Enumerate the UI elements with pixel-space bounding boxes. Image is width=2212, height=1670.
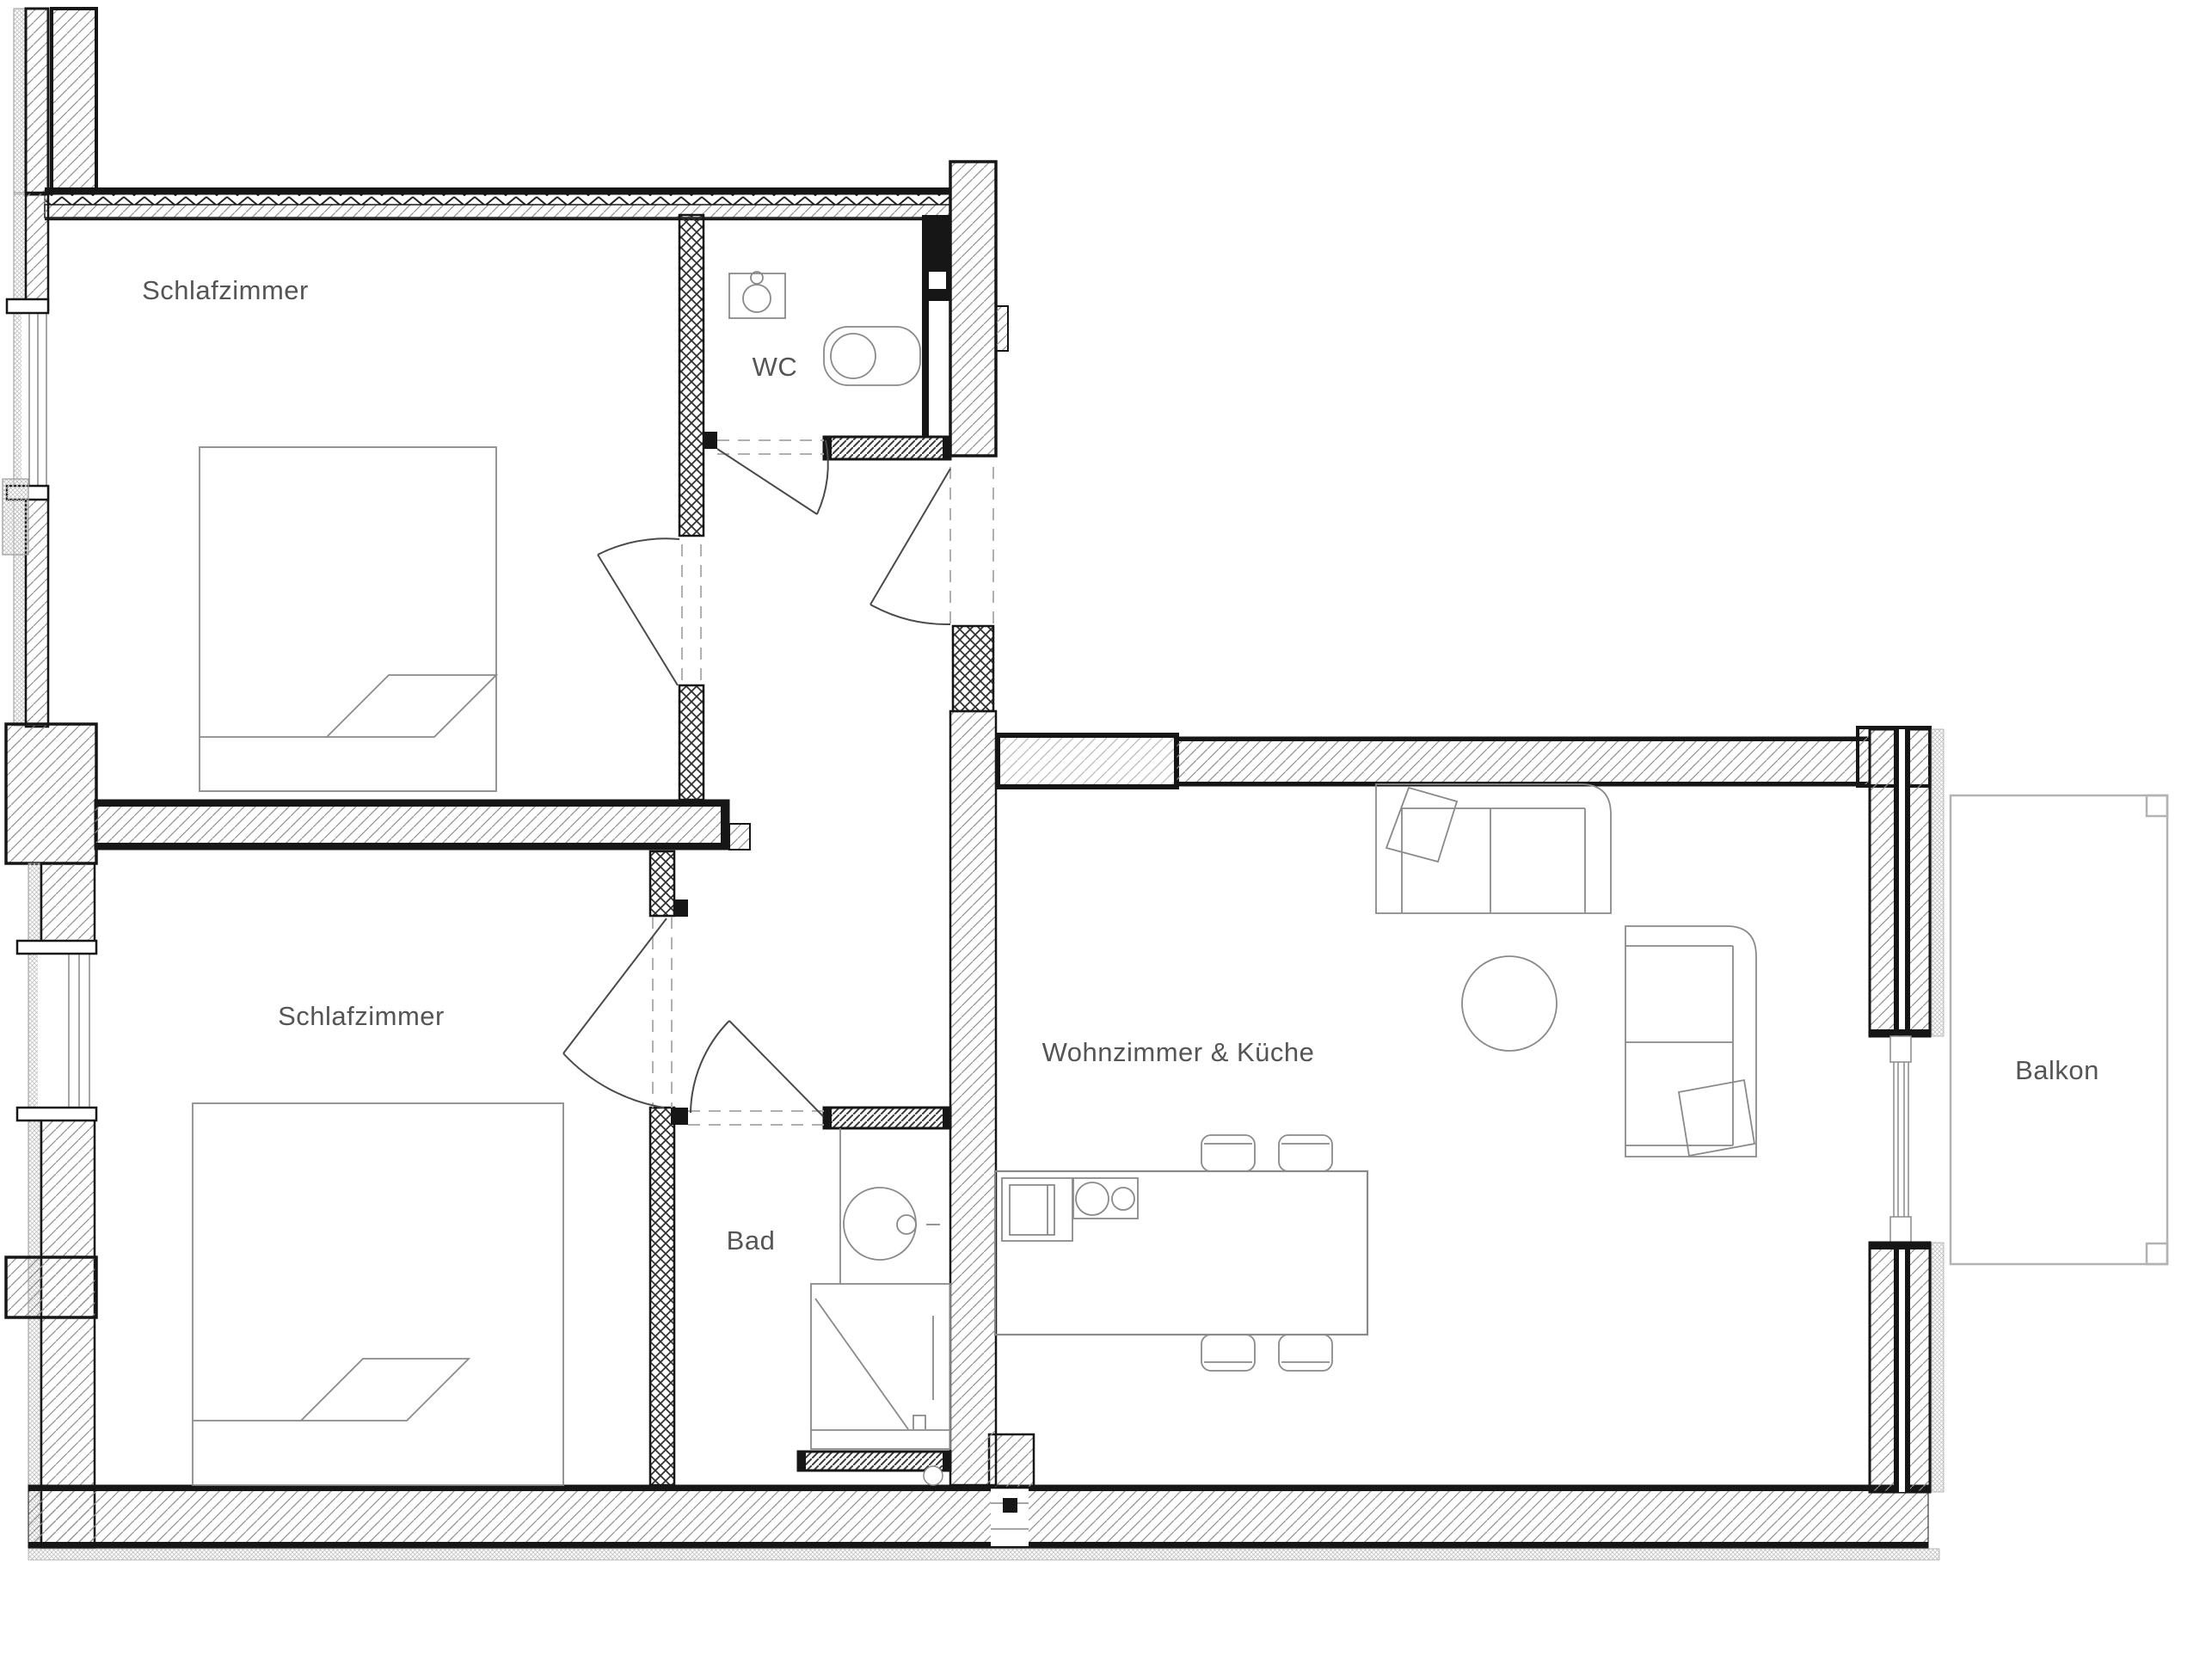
balcony-post-top [2147,795,2167,816]
party-wall-stub [14,9,96,194]
label-wc: WC [753,352,798,382]
door-bath [691,1021,823,1116]
wc-sink [729,272,785,318]
door-jamb-post-1 [704,432,717,449]
hall-pier [953,626,993,711]
bedroom1-east-wall [679,215,717,800]
pipe [924,1466,943,1485]
bath-south-wall [798,1452,950,1485]
column [950,162,1008,456]
east-wall-lower-block [1870,1243,1944,1492]
bath-shower [811,1284,950,1449]
cooktop [1073,1178,1138,1219]
wc-east-wall [922,215,950,437]
balcony-door [1890,1036,1911,1243]
bedroom2-east-wall [650,851,688,1485]
kitchen-sink [1002,1178,1072,1241]
living-west-wall [950,711,996,1485]
coffee-table [1462,956,1557,1051]
door-bedroom2 [563,918,667,1108]
interior-walls [95,162,1008,1485]
door-swings [563,440,950,1116]
wc-south-wall [824,437,950,459]
door-jamb-post-2 [674,899,688,917]
inter-bedroom-wall [95,800,750,850]
label-bedroom-bottom: Schlafzimmer [278,1001,445,1031]
floor-plan-drawing: Schlafzimmer WC Schlafzimmer Bad Wohnzim… [0,0,2212,1670]
label-living-kitchen: Wohnzimmer & Küche [1042,1037,1315,1067]
pillow [1386,788,1457,862]
west-wall-junction-block-1 [6,724,96,863]
sofa-top [1376,784,1611,913]
floor-plan-canvas: Schlafzimmer WC Schlafzimmer Bad Wohnzim… [0,0,2212,1670]
wc-toilet [824,327,920,385]
west-wall-upper [3,193,51,727]
east-wall-upper-block [1870,729,1944,1036]
pillow [1679,1080,1754,1156]
balcony-post-bottom [2147,1243,2167,1264]
living-north-wall [998,728,1930,787]
west-wall-junction-block-2 [6,1257,96,1317]
door-bedroom1 [598,538,679,685]
north-wall [45,187,950,219]
door-jamb-post-3 [671,1108,688,1125]
door-living-passage [870,469,950,624]
bed-bedroom1 [200,447,496,791]
balcony-outline [1951,795,2167,1264]
west-wall-lower [6,863,98,1548]
kitchen-island [995,1171,1367,1335]
bath-sink [840,1128,940,1284]
east-wall [1870,729,1944,1492]
label-bedroom-top: Schlafzimmer [142,275,309,305]
sofa-right [1625,926,1756,1157]
door-wc [717,440,828,514]
label-balcony: Balkon [2015,1055,2099,1085]
label-bath: Bad [727,1225,776,1256]
shaft [929,272,946,289]
bed-bedroom2 [193,1103,563,1485]
